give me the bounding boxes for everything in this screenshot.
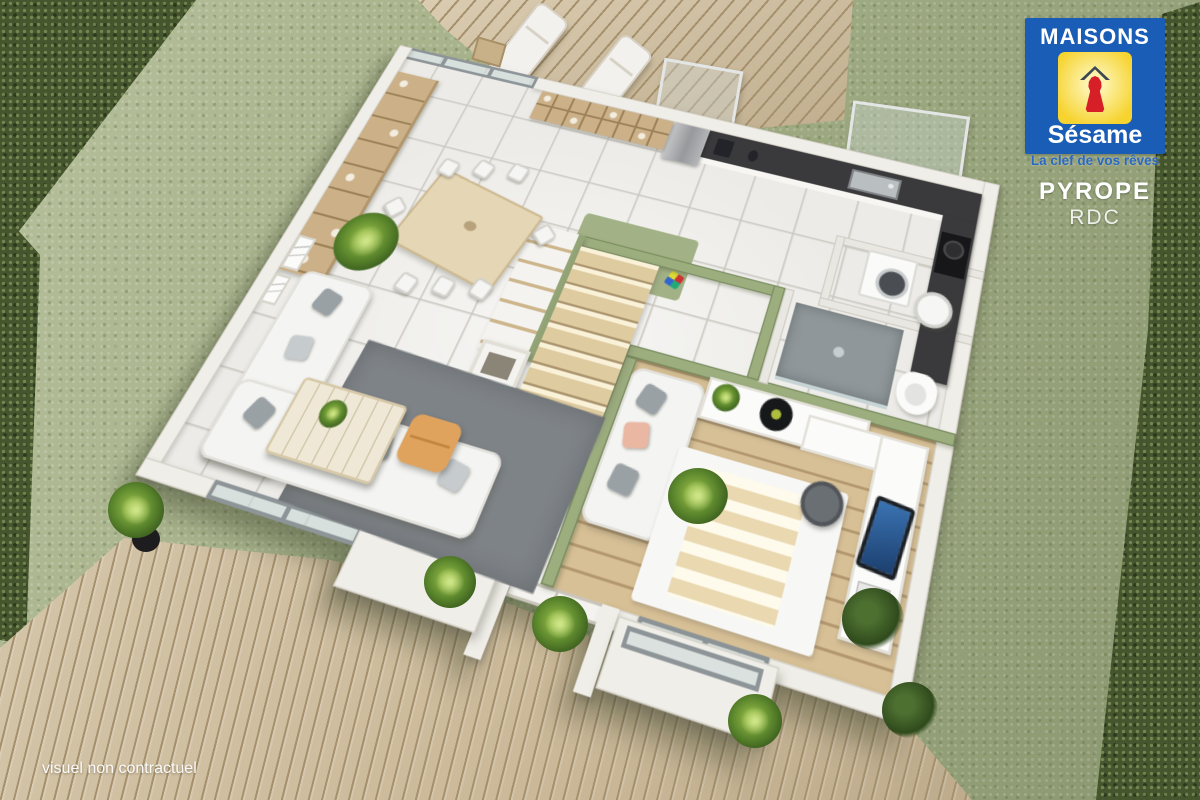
floorplan-render: MAISONS Sésame La clef de vos rêves PYRO…	[0, 0, 1200, 800]
keyhole-icon	[1084, 76, 1106, 112]
floor-level-label: RDC	[1013, 206, 1177, 230]
keyhole-house-icon	[1058, 52, 1132, 124]
brand-name-top: MAISONS	[1025, 24, 1165, 50]
brand-name-bottom: Sésame	[1025, 121, 1165, 150]
deck-grass-tuft	[424, 556, 476, 608]
brand-logo: MAISONS Sésame	[1025, 18, 1165, 154]
disclaimer-text: visuel non contractuel	[42, 760, 197, 778]
brand-tagline: La clef de vos rêves	[1013, 153, 1177, 168]
deck-grass-tuft	[728, 694, 782, 748]
deck-grass-tuft	[532, 596, 588, 652]
outdoor-plant	[108, 482, 164, 538]
model-name: PYROPE	[1013, 178, 1177, 206]
sofa-cushion	[622, 422, 650, 449]
planter-grass-tuft	[668, 468, 728, 524]
garden-shrub	[842, 588, 904, 650]
garden-shrub	[882, 682, 938, 738]
